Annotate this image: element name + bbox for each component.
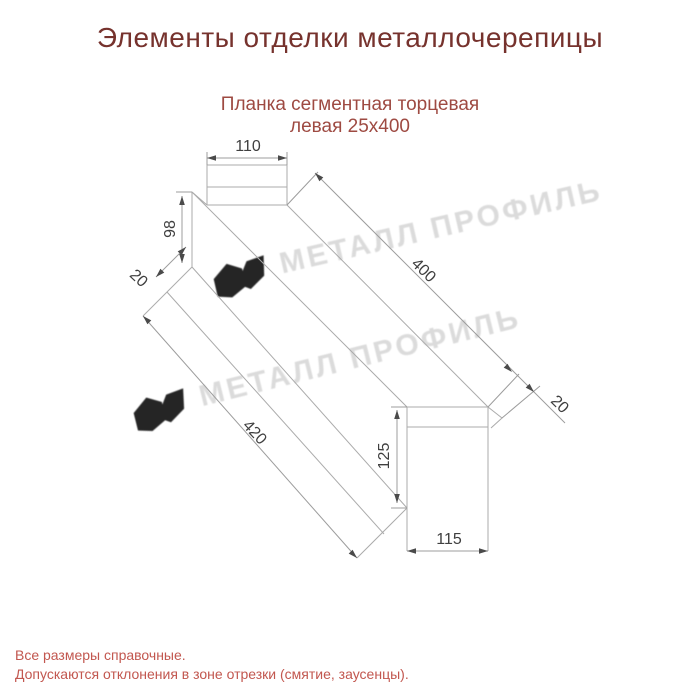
dimension-label-tab-height: 125: [376, 443, 394, 470]
dimension-lines: [143, 152, 565, 558]
long-edge-lower: [192, 267, 407, 508]
bottom-tab-outline: [407, 407, 488, 551]
long-edge-middle: [192, 192, 407, 407]
dimension-label-left-height: 98: [162, 220, 180, 238]
dimension-label-top-width: 110: [235, 138, 261, 156]
footer-notes: Все размеры справочные. Допускаются откл…: [15, 646, 615, 684]
hem-end-edge: [357, 508, 407, 558]
top-tab-outline: [207, 165, 287, 205]
long-edge-hem: [167, 292, 384, 534]
left-flange-edge: [143, 267, 192, 316]
footer-note-2: Допускаются отклонения в зоне отрезки (с…: [15, 665, 615, 684]
bottom-right-hem: [488, 407, 502, 428]
long-edge-top: [287, 205, 488, 407]
dim-400-line: [315, 173, 565, 423]
dim-400-ext: [287, 172, 540, 418]
footer-note-1: Все размеры справочные.: [15, 646, 615, 665]
part-outline: [143, 165, 502, 558]
dimension-label-tab-width: 115: [436, 531, 462, 549]
technical-drawing: [0, 0, 700, 700]
dimension-arrowheads: [143, 155, 534, 558]
